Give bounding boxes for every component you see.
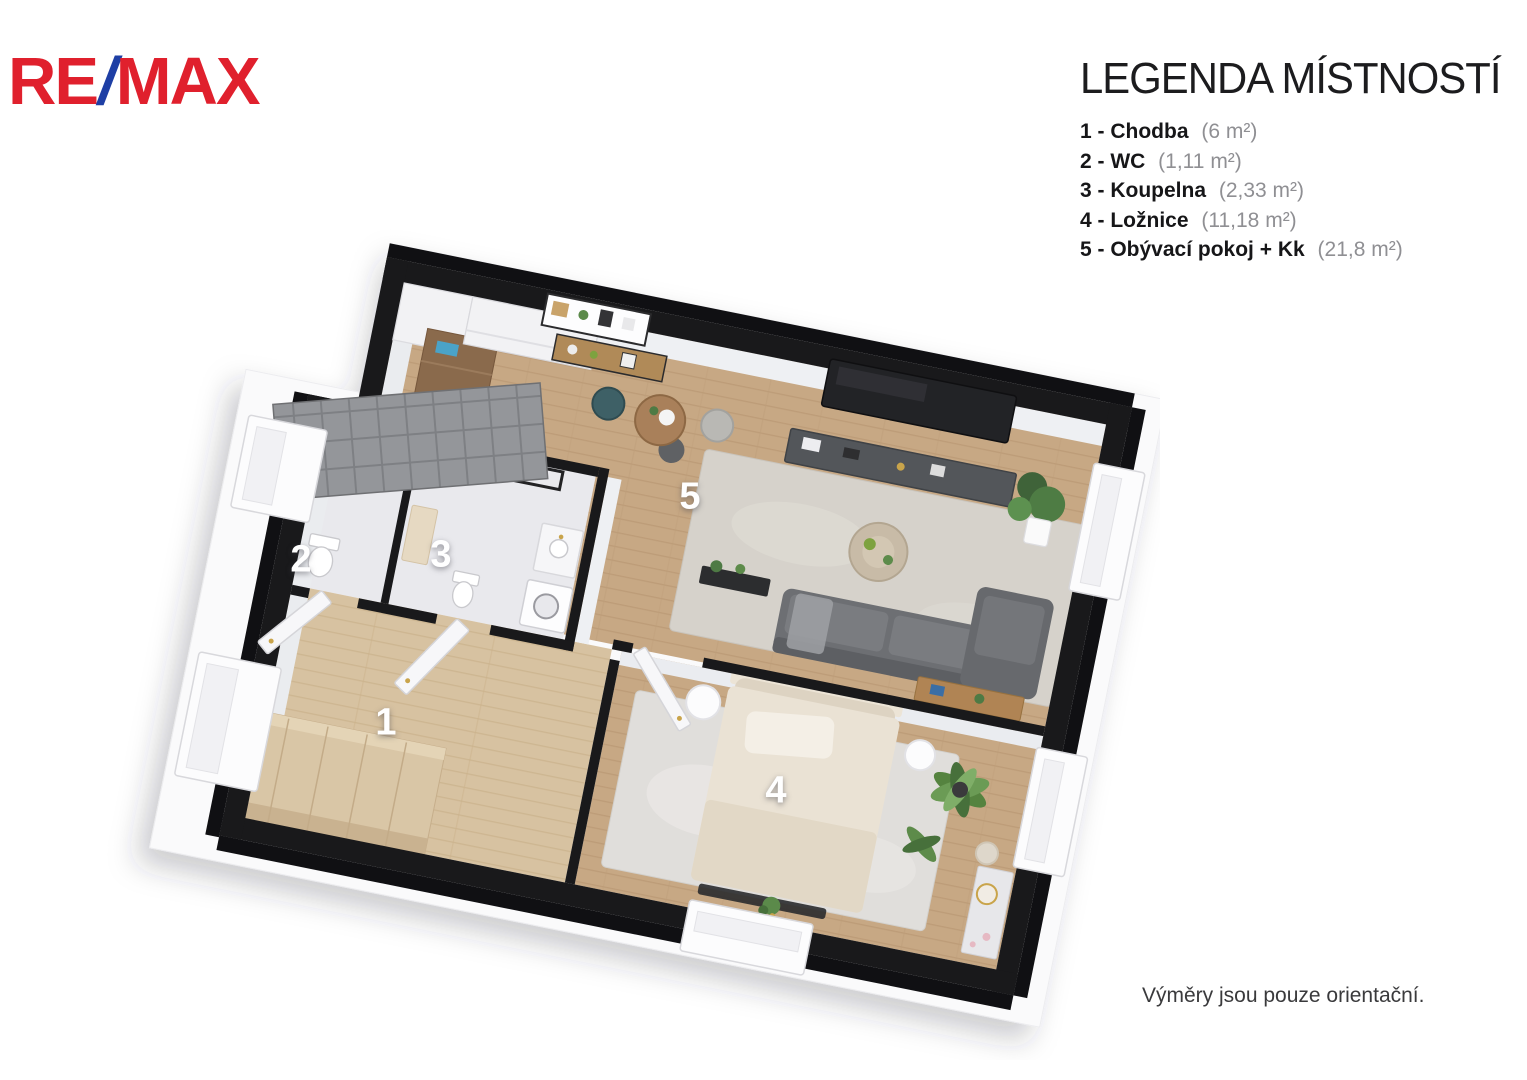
legend-item-label: 3 - Koupelna [1080,179,1206,202]
legend-item-label: 2 - WC [1080,150,1145,173]
legend-item-chodba: 1 - Chodba (6 m²) [1080,117,1527,147]
floor-plan: 1 2 3 4 5 [90,220,1160,1060]
legend-item-wc: 2 - WC (1,11 m²) [1080,147,1527,177]
legend-item-area: (21,8 m²) [1318,238,1403,261]
window-wc-left [230,415,327,523]
washing-machine [519,579,573,633]
remax-logo: RE/MAX [8,48,259,115]
legend-item-area: (1,11 m²) [1158,150,1242,173]
room-number-koupelna: 3 [430,534,451,577]
remax-logo-re: RE [8,44,97,119]
remax-logo-slash: / [97,44,116,119]
legend-item-koupelna: 3 - Koupelna (2,33 m²) [1080,176,1527,206]
legend-title: LEGENDA MÍSTNOSTÍ [1080,54,1505,104]
floor-plan-svg [90,220,1160,1060]
room-number-obyvaci-pokoj: 5 [679,476,700,519]
disclaimer-text: Výměry jsou pouze orientační. [1142,984,1424,1008]
legend-item-label: 1 - Chodba [1080,120,1189,143]
washbasin [533,523,584,578]
room-number-loznice: 4 [765,770,786,813]
legend-item-area: (2,33 m²) [1219,179,1304,202]
legend-item-area: (11,18 m²) [1201,209,1296,232]
legend-item-area: (6 m²) [1201,120,1257,143]
room-number-chodba: 1 [375,702,396,745]
remax-logo-max: MAX [116,44,259,119]
room-number-wc: 2 [290,539,311,582]
